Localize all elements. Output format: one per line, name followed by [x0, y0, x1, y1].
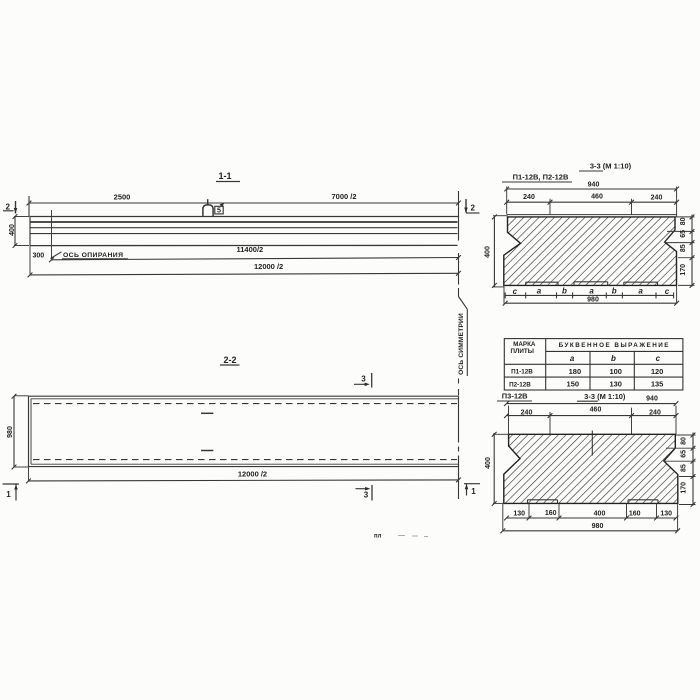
svg-text:150: 150	[567, 380, 580, 389]
svg-text:7000 /2: 7000 /2	[331, 192, 356, 201]
svg-text:b: b	[612, 286, 617, 295]
svg-text:65: 65	[680, 230, 687, 238]
svg-text:с: с	[513, 287, 518, 296]
svg-text:120: 120	[651, 367, 664, 376]
svg-text:160: 160	[545, 510, 557, 517]
svg-text:П3-12В: П3-12В	[502, 392, 528, 401]
svg-text:400: 400	[9, 224, 16, 236]
svg-text:400: 400	[594, 510, 606, 517]
svg-text:130: 130	[609, 380, 622, 389]
svg-text:85: 85	[681, 464, 688, 472]
svg-text:160: 160	[629, 510, 641, 517]
svg-text:пл: пл	[374, 534, 382, 540]
svg-text:170: 170	[681, 482, 688, 494]
svg-text:11400/2: 11400/2	[237, 245, 264, 254]
svg-text:П1-12В: П1-12В	[511, 369, 533, 376]
svg-text:П2-12В: П2-12В	[509, 381, 531, 388]
svg-text:460: 460	[590, 406, 602, 413]
svg-text:80: 80	[681, 437, 688, 445]
svg-text:3-3 (М 1:10): 3-3 (М 1:10)	[584, 392, 626, 401]
svg-text:1: 1	[471, 487, 476, 496]
svg-text:240: 240	[523, 194, 535, 201]
svg-text:5: 5	[217, 208, 221, 215]
svg-text:240: 240	[521, 409, 533, 416]
svg-text:980: 980	[587, 297, 599, 304]
svg-text:240: 240	[649, 409, 661, 416]
svg-text:а: а	[570, 354, 575, 363]
svg-text:2500: 2500	[114, 193, 131, 202]
svg-text:3: 3	[361, 374, 366, 383]
svg-text:а: а	[589, 286, 594, 295]
svg-text:ПЛИТЫ: ПЛИТЫ	[510, 348, 533, 355]
svg-text:100: 100	[609, 367, 622, 376]
svg-text:180: 180	[569, 367, 582, 376]
svg-text:а: а	[537, 286, 542, 295]
svg-text:1-1: 1-1	[218, 171, 231, 181]
svg-text:12000 /2: 12000 /2	[254, 262, 283, 271]
svg-text:80: 80	[680, 217, 687, 225]
svg-text:b: b	[562, 286, 567, 295]
svg-text:940: 940	[588, 182, 600, 189]
svg-text:с: с	[656, 354, 661, 363]
svg-text:85: 85	[680, 244, 687, 252]
svg-text:b: b	[611, 354, 616, 363]
svg-text:170: 170	[680, 264, 687, 276]
svg-text:3: 3	[364, 491, 369, 500]
svg-text:300: 300	[32, 253, 44, 260]
svg-text:135: 135	[651, 380, 664, 389]
svg-text:ОСЬ ОПИРАНИЯ: ОСЬ ОПИРАНИЯ	[63, 252, 123, 259]
svg-text:130: 130	[513, 510, 525, 517]
svg-text:980: 980	[592, 523, 604, 530]
svg-text:БУКВЕННОЕ ВЫРАЖЕНИЕ: БУКВЕННОЕ ВЫРАЖЕНИЕ	[559, 342, 670, 349]
svg-text:2: 2	[5, 203, 10, 212]
svg-text:П1-12В, П2-12В: П1-12В, П2-12В	[513, 173, 569, 182]
svg-text:400: 400	[485, 457, 492, 469]
svg-text:65: 65	[681, 450, 688, 458]
svg-text:400: 400	[484, 246, 491, 258]
svg-text:2: 2	[470, 204, 475, 213]
svg-text:МАРКА: МАРКА	[513, 341, 536, 348]
svg-text:240: 240	[651, 194, 663, 201]
svg-text:460: 460	[591, 193, 603, 200]
svg-text:ОСЬ СИММЕТРИИ: ОСЬ СИММЕТРИИ	[458, 313, 465, 375]
svg-text:с: с	[665, 287, 670, 296]
svg-text:3-3 (М 1:10): 3-3 (М 1:10)	[590, 162, 632, 171]
svg-text:12000 /2: 12000 /2	[238, 470, 267, 479]
svg-text:940: 940	[646, 395, 658, 402]
svg-text:1: 1	[6, 490, 11, 499]
svg-text:а: а	[638, 286, 643, 295]
svg-text:980: 980	[7, 426, 14, 438]
svg-text:130: 130	[660, 510, 672, 517]
svg-text:2-2: 2-2	[223, 355, 236, 365]
